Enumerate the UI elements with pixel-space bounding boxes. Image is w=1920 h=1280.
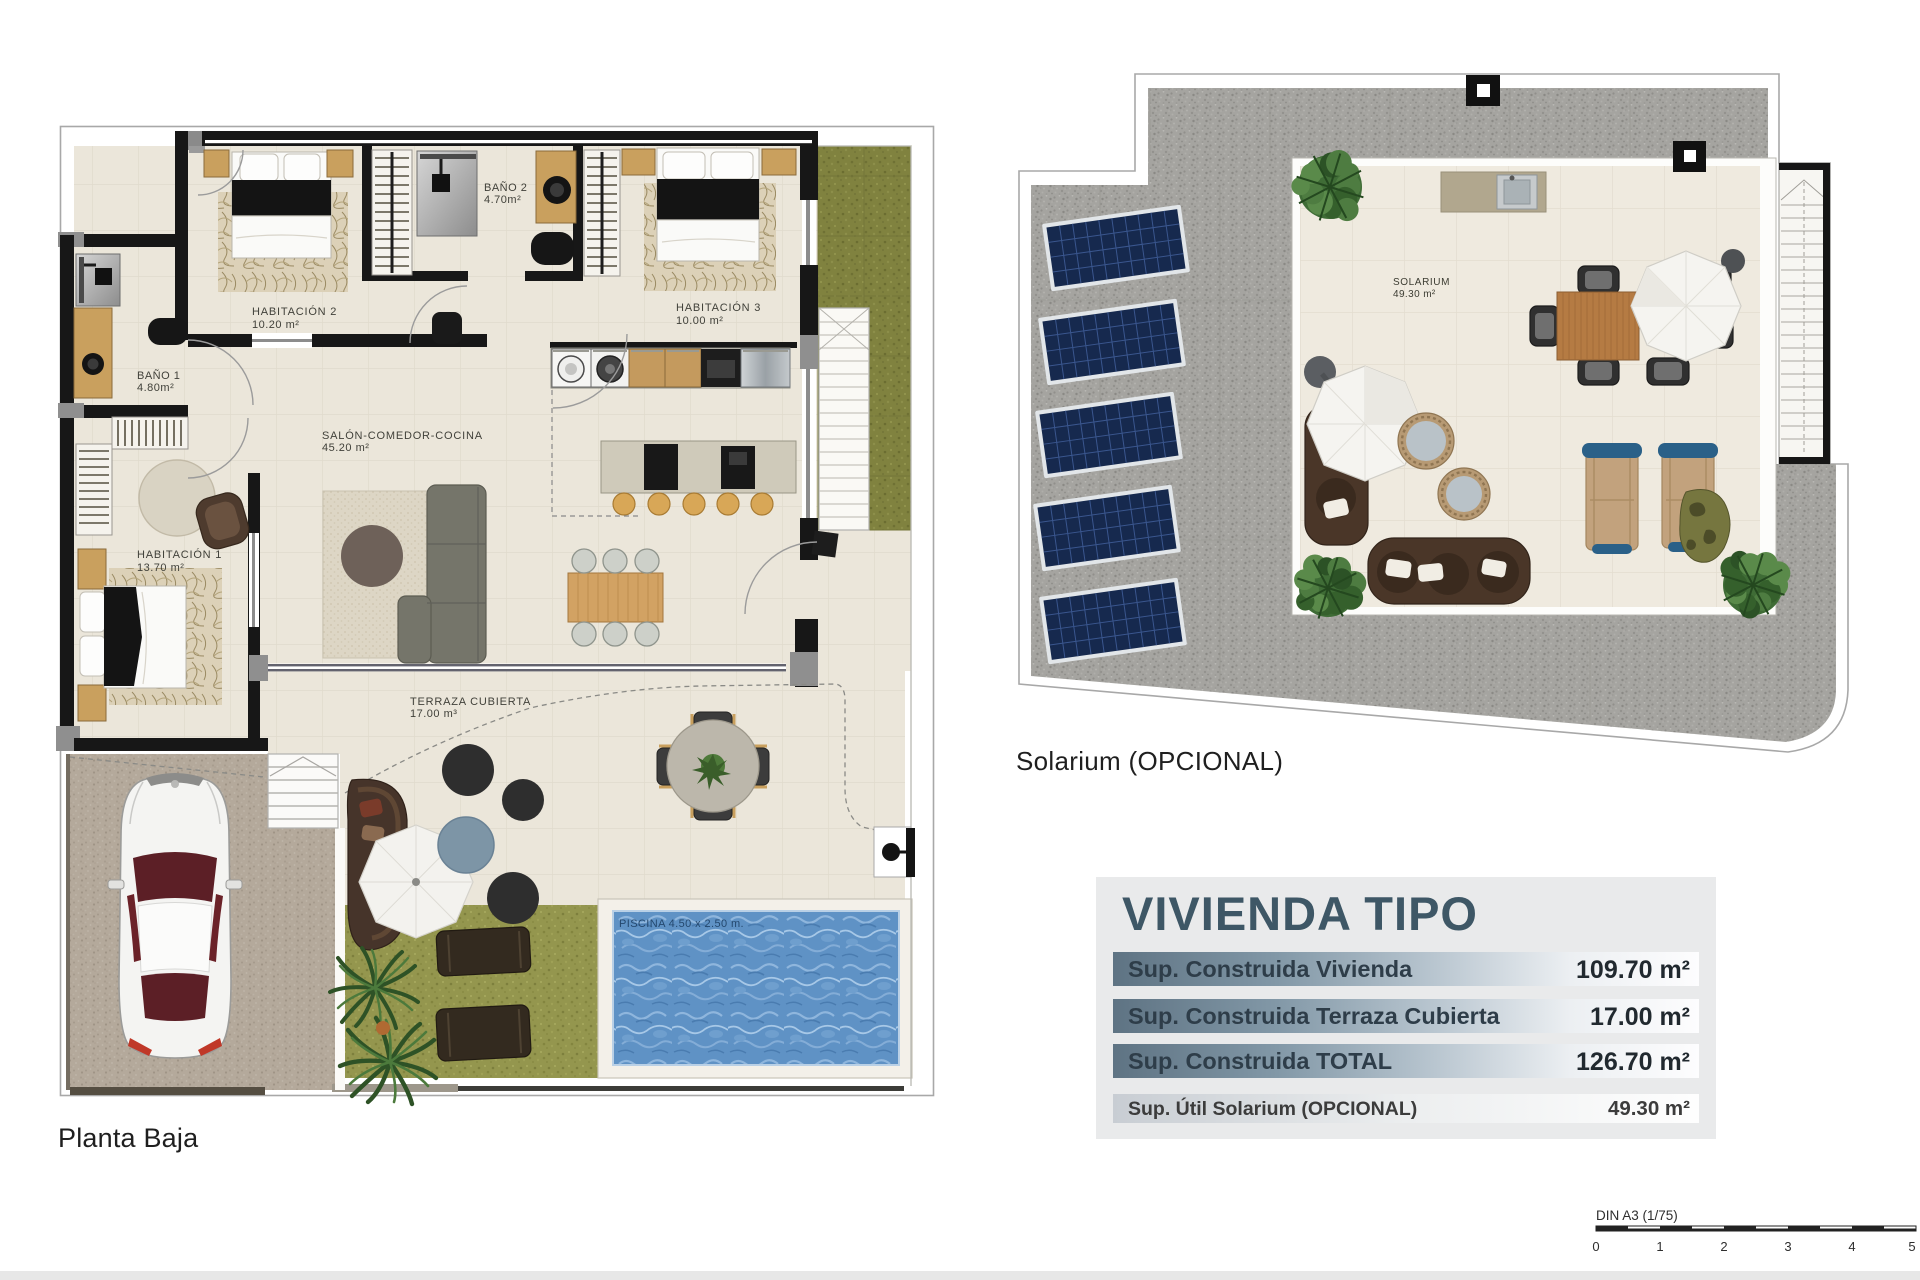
svg-text:VIVIENDA TIPO: VIVIENDA TIPO — [1122, 887, 1478, 940]
svg-text:Sup. Construida Terraza Cubier: Sup. Construida Terraza Cubierta — [1128, 1003, 1501, 1029]
svg-text:17.00 m²: 17.00 m² — [1590, 1003, 1690, 1031]
svg-text:3: 3 — [1784, 1239, 1791, 1254]
svg-text:10.20 m²: 10.20 m² — [252, 319, 299, 331]
svg-text:Planta Baja: Planta Baja — [58, 1123, 199, 1153]
svg-text:49.30 m²: 49.30 m² — [1608, 1097, 1690, 1120]
svg-text:4.70m²: 4.70m² — [484, 194, 521, 206]
svg-text:Solarium (OPCIONAL): Solarium (OPCIONAL) — [1016, 746, 1283, 776]
svg-text:2: 2 — [1720, 1239, 1727, 1254]
svg-text:10.00 m²: 10.00 m² — [676, 315, 723, 327]
svg-text:17.00 m³: 17.00 m³ — [410, 708, 457, 720]
svg-text:5: 5 — [1908, 1239, 1915, 1254]
svg-text:45.20 m²: 45.20 m² — [322, 442, 369, 454]
svg-text:SALÓN-COMEDOR-COCINA: SALÓN-COMEDOR-COCINA — [322, 429, 483, 442]
svg-text:Sup. Construida TOTAL: Sup. Construida TOTAL — [1128, 1048, 1392, 1074]
svg-text:49.30 m²: 49.30 m² — [1393, 289, 1436, 300]
svg-text:1: 1 — [1656, 1239, 1663, 1254]
svg-text:HABITACIÓN 3: HABITACIÓN 3 — [676, 301, 761, 314]
svg-text:SOLARIUM: SOLARIUM — [1393, 277, 1450, 288]
svg-text:4.80m²: 4.80m² — [137, 382, 174, 394]
svg-text:Sup. Construida Vivienda: Sup. Construida Vivienda — [1128, 956, 1413, 982]
svg-text:HABITACIÓN 1: HABITACIÓN 1 — [137, 548, 222, 561]
svg-text:109.70 m²: 109.70 m² — [1576, 956, 1690, 984]
svg-text:TERRAZA CUBIERTA: TERRAZA CUBIERTA — [410, 696, 531, 708]
svg-text:PISCINA 4.50 x 2.50 m.: PISCINA 4.50 x 2.50 m. — [619, 918, 744, 930]
svg-text:BAÑO 2: BAÑO 2 — [484, 181, 527, 194]
svg-text:DIN A3 (1/75): DIN A3 (1/75) — [1596, 1208, 1678, 1223]
svg-text:Sup. Útil Solarium (OPCIONAL): Sup. Útil Solarium (OPCIONAL) — [1128, 1096, 1417, 1120]
svg-text:0: 0 — [1592, 1239, 1599, 1254]
svg-text:HABITACIÓN 2: HABITACIÓN 2 — [252, 305, 337, 318]
svg-text:BAÑO 1: BAÑO 1 — [137, 369, 180, 382]
svg-text:4: 4 — [1848, 1239, 1855, 1254]
svg-text:126.70 m²: 126.70 m² — [1576, 1048, 1690, 1076]
svg-text:13.70 m²: 13.70 m² — [137, 562, 184, 574]
